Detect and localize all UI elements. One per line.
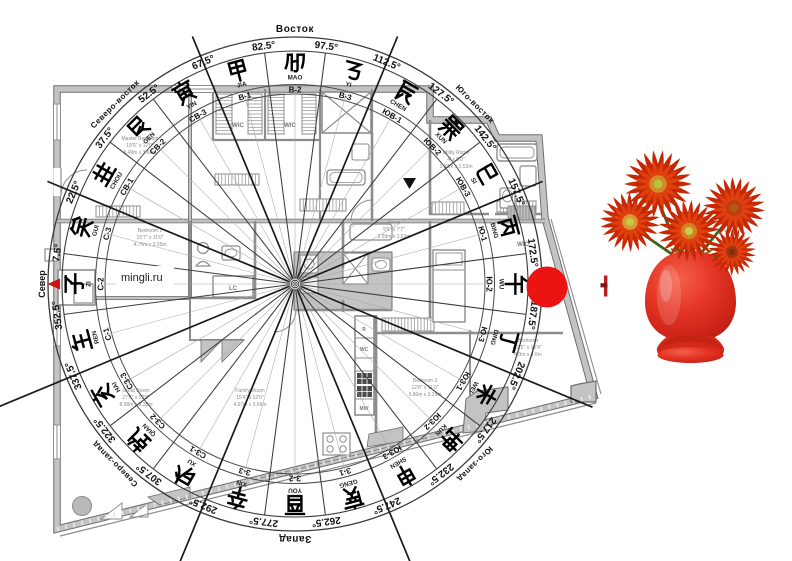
svg-text:Bedroom12'5" x 12'4"4.0m x 4.0: Bedroom12'5" x 12'4"4.0m x 4.0m xyxy=(514,338,542,358)
svg-text:Запад: Запад xyxy=(279,533,312,544)
svg-text:YOU: YOU xyxy=(288,487,302,494)
svg-text:В-2: В-2 xyxy=(289,85,302,94)
svg-text:MAO: MAO xyxy=(288,75,303,82)
svg-text:mingli.ru: mingli.ru xyxy=(121,272,163,284)
svg-text:Bedroom 312'8" x 11'0"3.86m x: Bedroom 312'8" x 11'0"3.86m x 3.35m xyxy=(408,378,441,398)
svg-text:ZI: ZI xyxy=(86,281,93,287)
svg-text:С-2: С-2 xyxy=(96,277,105,290)
svg-text:R: R xyxy=(362,327,366,333)
svg-text:Ю-2: Ю-2 xyxy=(485,276,494,292)
svg-text:WIC: WIC xyxy=(284,123,296,129)
svg-text:LC: LC xyxy=(229,286,238,292)
svg-text:WU: WU xyxy=(498,279,505,290)
svg-text:WIC: WIC xyxy=(232,123,244,129)
svg-text:Север: Север xyxy=(37,270,47,298)
svg-text:Восток: Восток xyxy=(276,24,315,35)
svg-text:З-2: З-2 xyxy=(288,474,301,483)
svg-text:7.5°: 7.5° xyxy=(51,243,64,262)
